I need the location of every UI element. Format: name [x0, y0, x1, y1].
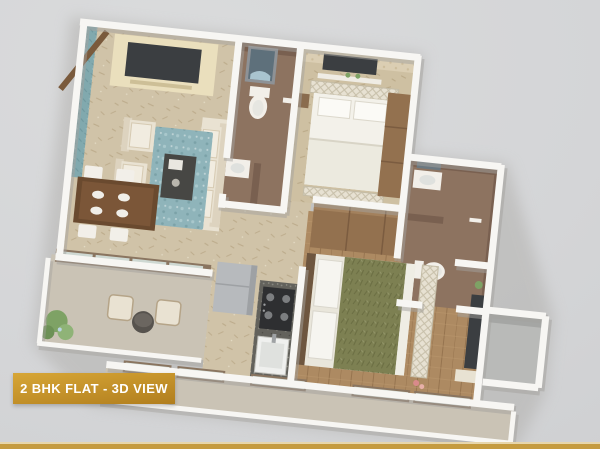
- pillow: [318, 97, 352, 118]
- coffee-table: [160, 153, 196, 200]
- tv-unit: [110, 34, 219, 97]
- balcony-chair: [107, 294, 133, 320]
- screenshot-stage: 2 BHK FLAT - 3D VIEW: [0, 0, 600, 449]
- washbasin-2: [413, 170, 443, 191]
- bottom-gold-bar: [0, 442, 600, 449]
- plan-title-badge: 2 BHK FLAT - 3D VIEW: [13, 373, 175, 404]
- gas-stove: [259, 287, 295, 332]
- towel-holder: [283, 98, 292, 104]
- pillow: [353, 101, 387, 122]
- kitchen-sink: [254, 332, 289, 375]
- refrigerator: [212, 262, 257, 316]
- armchair-1: [121, 117, 156, 154]
- pillow: [308, 311, 337, 360]
- bed-2: [295, 253, 415, 376]
- dining-chair: [109, 227, 128, 242]
- pillow: [314, 259, 343, 308]
- dining-chair: [78, 224, 97, 239]
- bed2-green-spread: [333, 257, 406, 375]
- bathroom1-mirror: [245, 46, 279, 85]
- balcony-chair: [155, 300, 181, 326]
- plan-title-text: 2 BHK FLAT - 3D VIEW: [20, 381, 168, 396]
